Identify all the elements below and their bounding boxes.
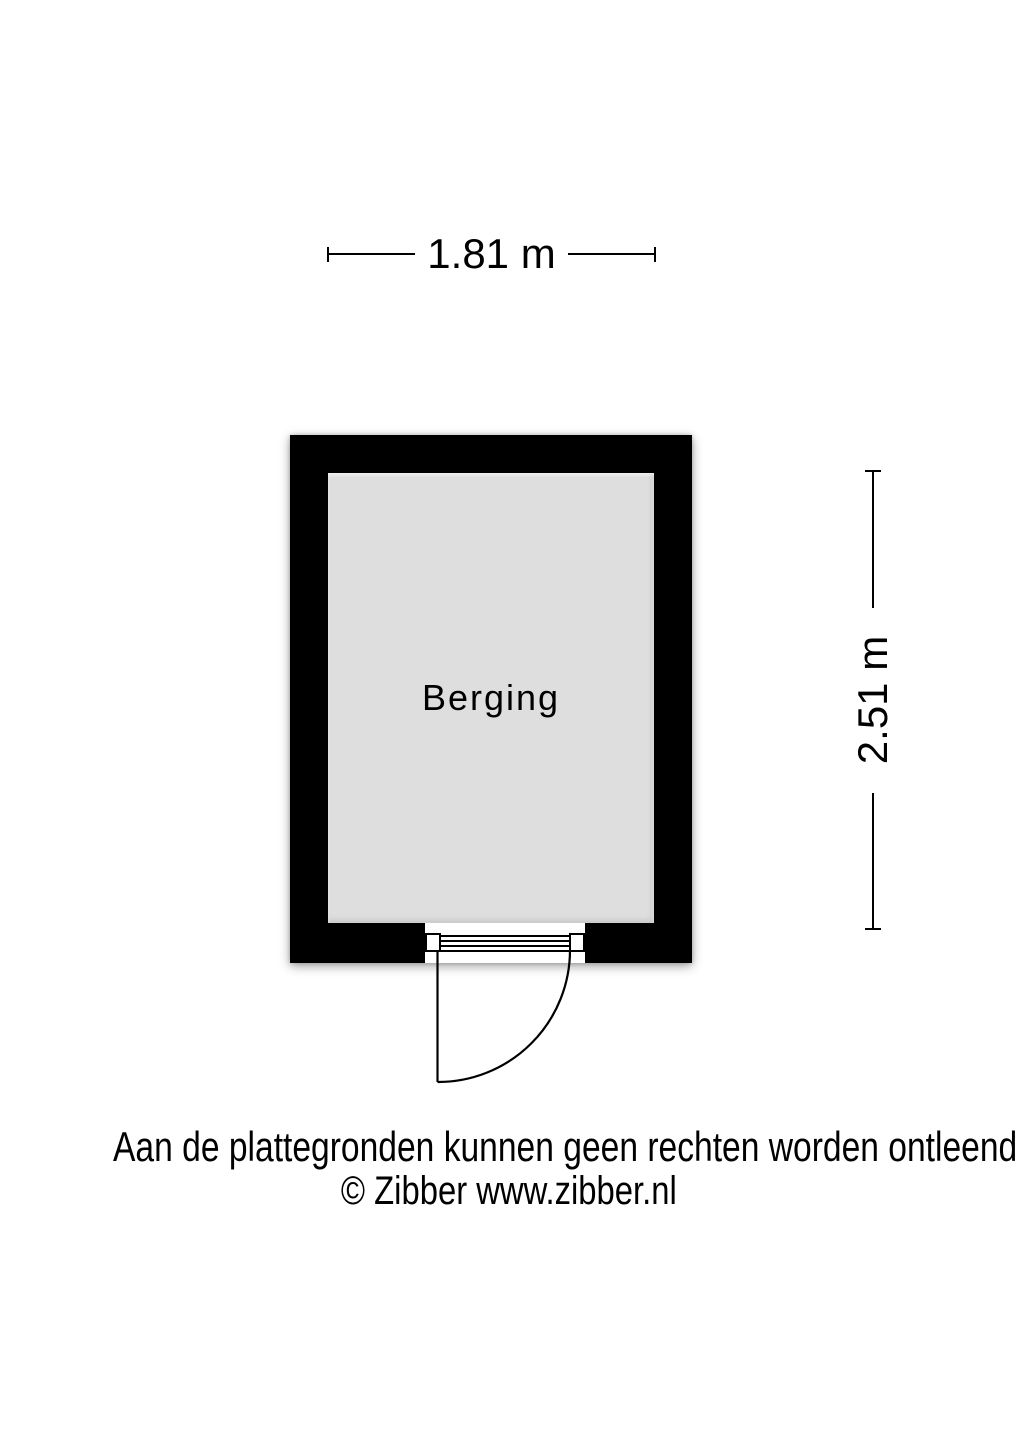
height-dimension-label-wrap: 2.51 m bbox=[855, 608, 891, 793]
height-dimension: 2.51 m bbox=[855, 470, 891, 930]
dimension-line-right-segment bbox=[568, 253, 654, 255]
width-dimension-label: 1.81 m bbox=[427, 233, 555, 275]
dimension-tick-right bbox=[654, 247, 656, 262]
floorplan-canvas: 1.81 m Berging 2.51 m bbox=[0, 0, 1018, 1440]
room-berging-floor: Berging bbox=[328, 473, 654, 923]
door-swing-arc bbox=[438, 950, 571, 1082]
dimension-line-bottom-segment bbox=[872, 793, 874, 929]
room-berging-walls: Berging bbox=[290, 435, 692, 963]
width-dimension: 1.81 m bbox=[327, 235, 656, 273]
dimension-tick-bottom bbox=[865, 928, 881, 930]
copyright-text: © Zibber www.zibber.nl bbox=[0, 1171, 1018, 1211]
room-label: Berging bbox=[422, 680, 560, 716]
dimension-line-left-segment bbox=[329, 253, 415, 255]
disclaimer-text: Aan de plattegronden kunnen geen rechten… bbox=[0, 1126, 1018, 1168]
height-dimension-label: 2.51 m bbox=[852, 636, 894, 764]
dimension-line-top-segment bbox=[872, 472, 874, 608]
